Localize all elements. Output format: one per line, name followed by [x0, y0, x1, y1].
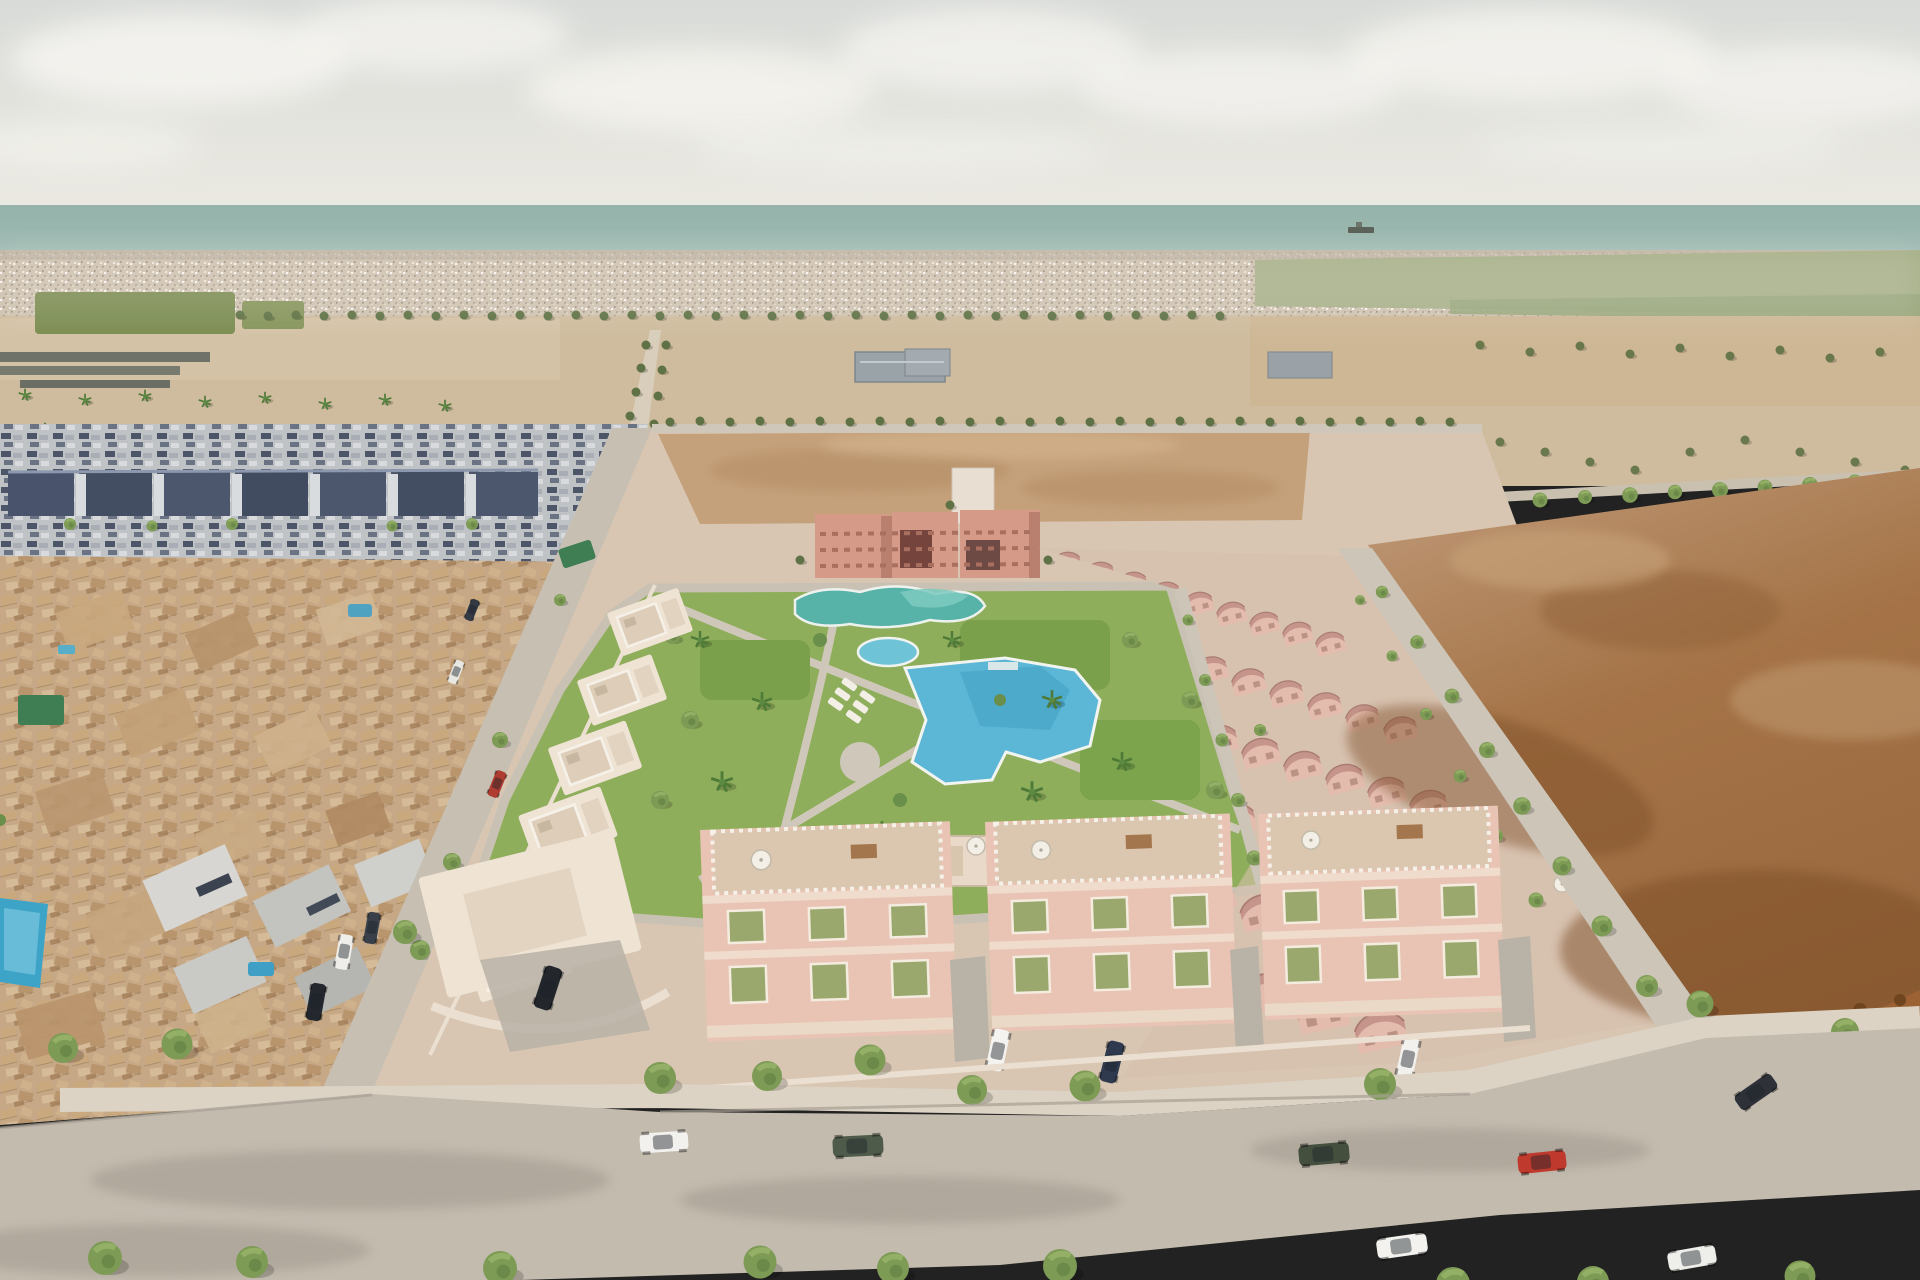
- kidney-pool: [858, 638, 918, 666]
- bush: [813, 633, 827, 647]
- white-car-bottom-right: [1666, 1242, 1718, 1273]
- apartment-side: [1029, 512, 1040, 578]
- old-town-pool-1: [348, 604, 372, 617]
- old-town-pool-3: [58, 645, 75, 654]
- bush: [893, 793, 907, 807]
- dark-green-suv-parked: [1298, 1140, 1351, 1168]
- sand-patch-right: [1250, 316, 1920, 406]
- aerial-render: [0, 0, 1920, 1280]
- green-shed: [18, 695, 64, 725]
- white-car-bottom: [1375, 1231, 1428, 1262]
- sea-sheen: [0, 205, 1920, 257]
- terrace-furniture: [1396, 824, 1422, 839]
- townhouse-block-3: [1258, 806, 1505, 1020]
- pool-steps: [988, 662, 1018, 670]
- terrace-furniture: [851, 844, 877, 859]
- terrace-furniture: [1126, 834, 1152, 849]
- gray-housing-estate: [0, 424, 648, 562]
- park-plaza: [840, 742, 880, 782]
- private-pool-shallow: [4, 908, 40, 975]
- white-hatchback-parked: [639, 1129, 689, 1155]
- townhouse-block-1: [700, 821, 957, 1042]
- old-town-pool-2: [248, 962, 274, 976]
- lawn-patch: [700, 640, 810, 700]
- horizon-haze: [0, 250, 1920, 320]
- townhouse-block-2: [985, 813, 1237, 1031]
- lawn-patch: [1080, 720, 1200, 800]
- apartment-side: [881, 516, 892, 578]
- apartment-dark-block-2: [966, 540, 1000, 570]
- estate-dark-roof-row: [8, 470, 538, 516]
- scene-canvas: [0, 0, 1920, 1280]
- bush: [994, 694, 1006, 706]
- dark-green-suv-driving: [832, 1133, 884, 1160]
- apartment-block: [815, 514, 889, 578]
